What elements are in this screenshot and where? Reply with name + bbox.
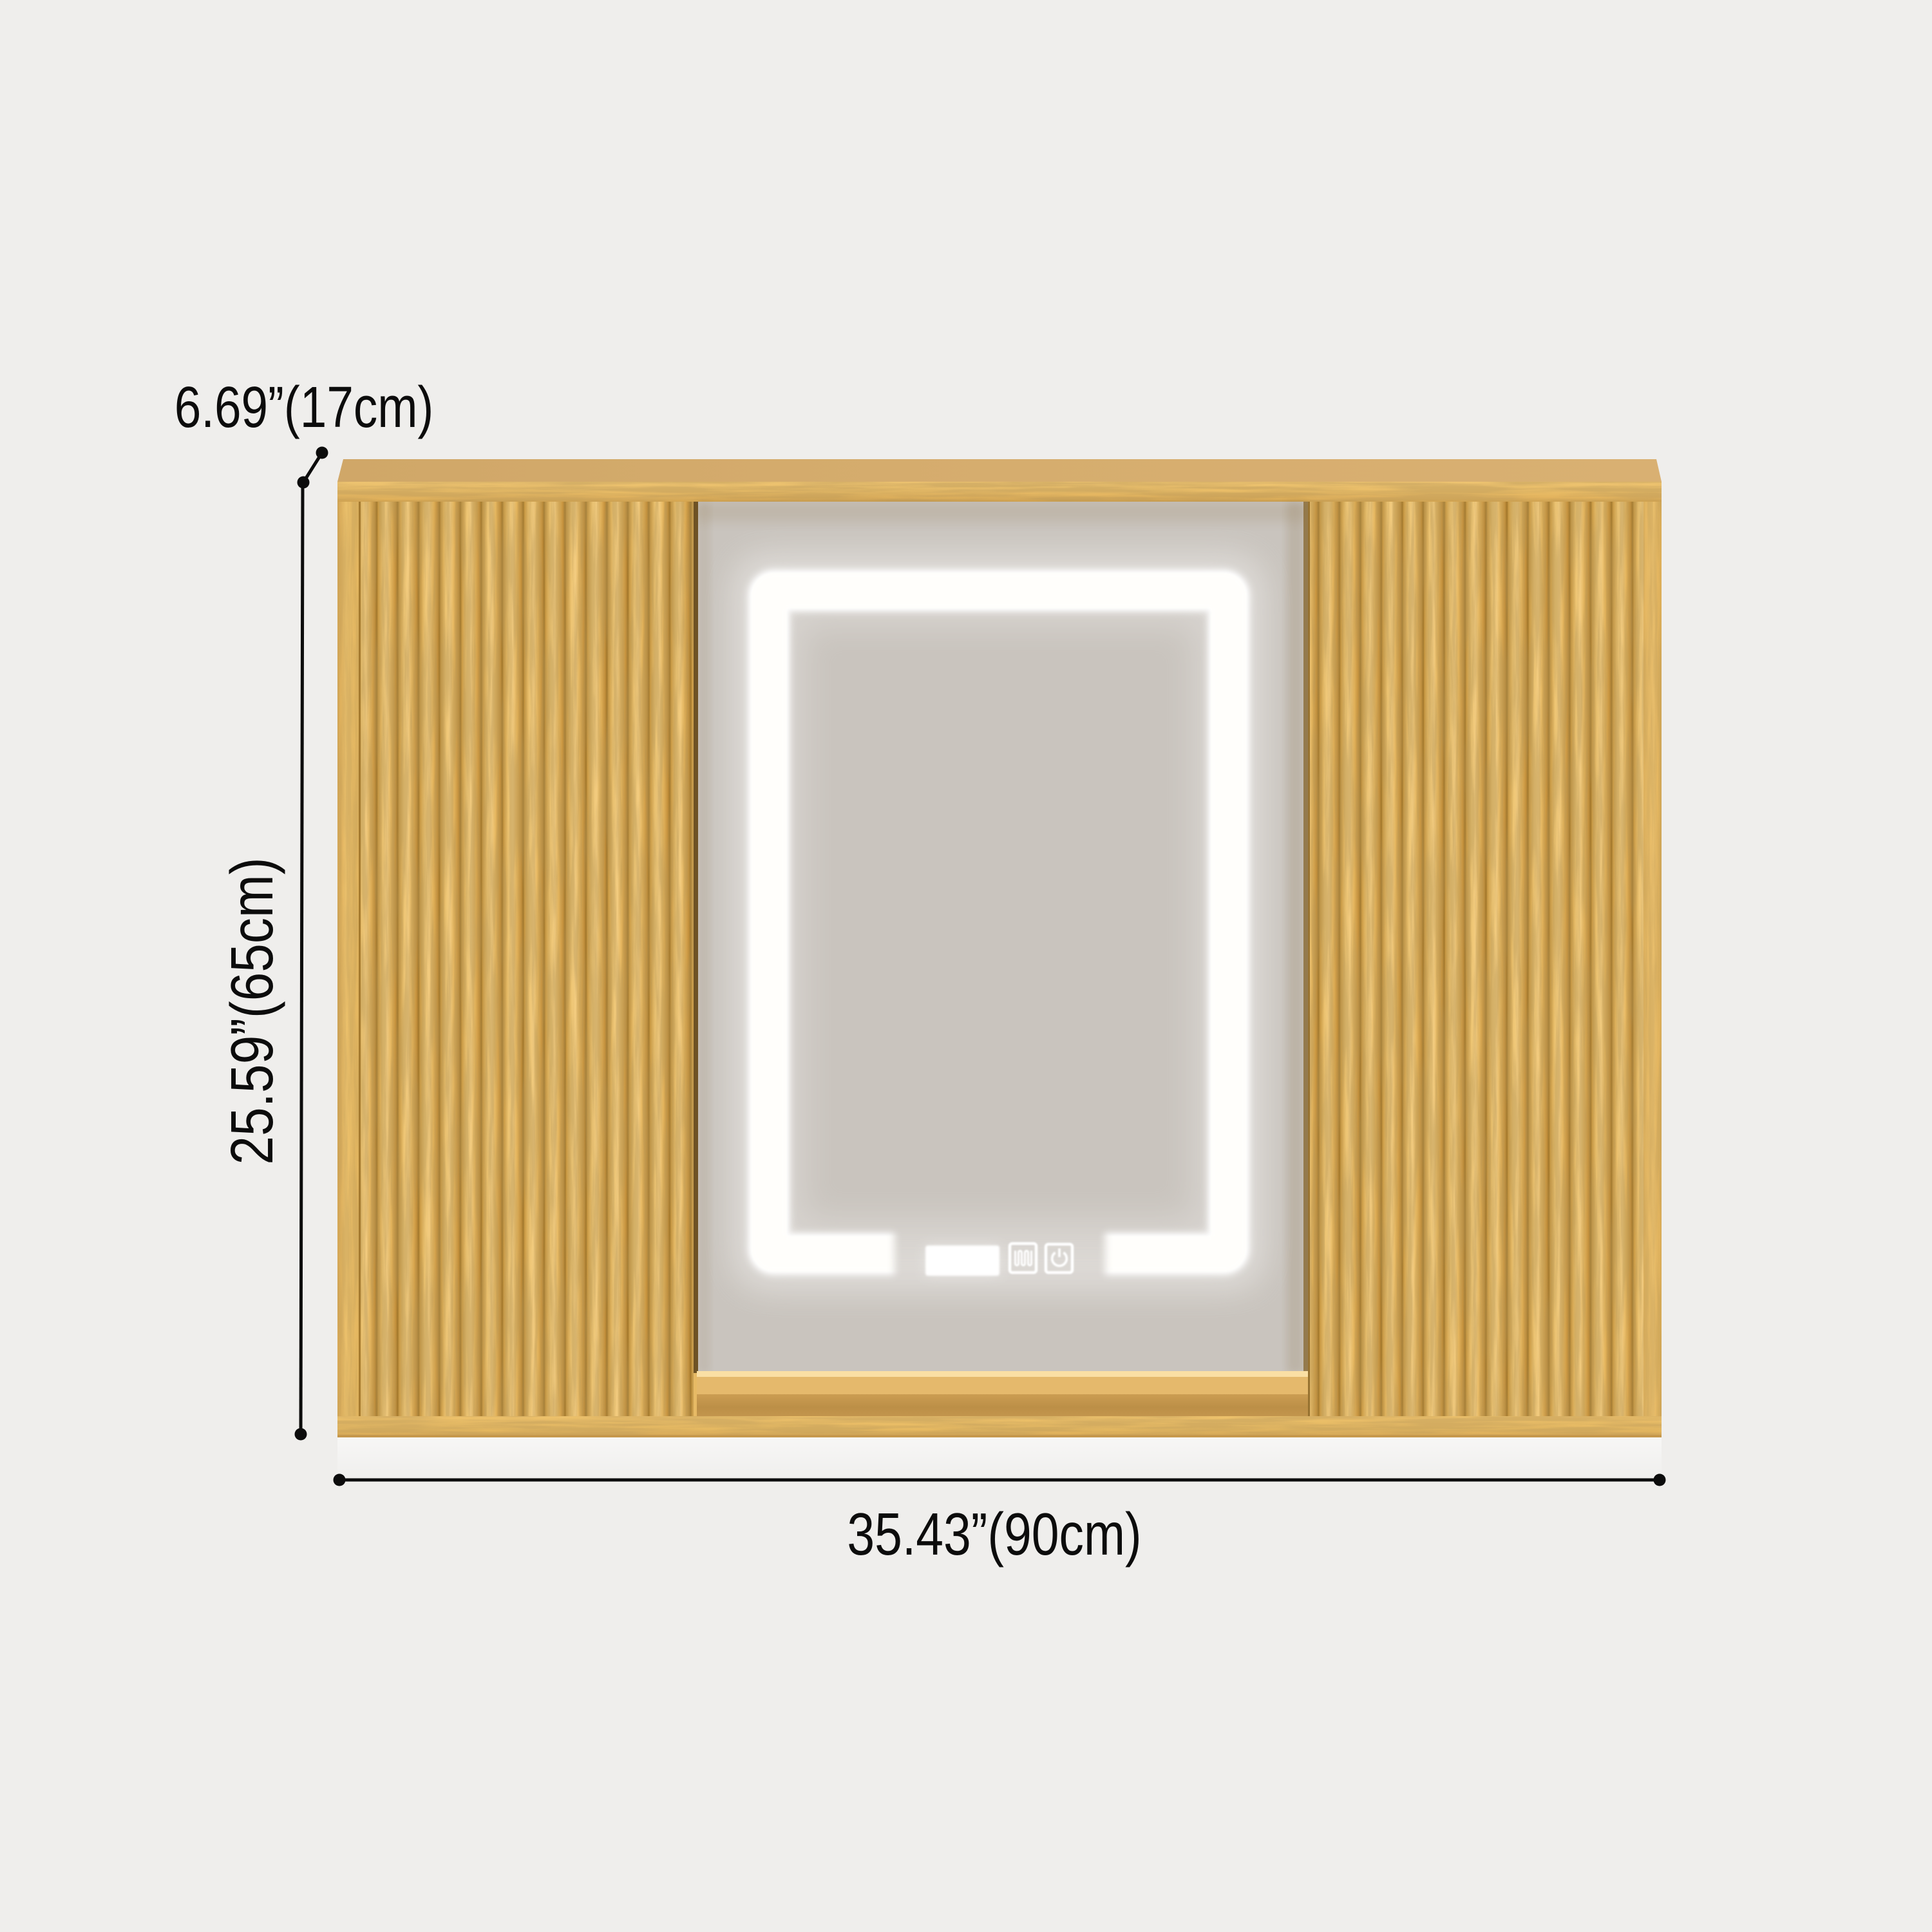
svg-text:6.69”(17cm): 6.69”(17cm) bbox=[175, 374, 434, 439]
svg-text:25.59”(65cm): 25.59”(65cm) bbox=[218, 857, 285, 1164]
svg-text:35.43”(90cm): 35.43”(90cm) bbox=[847, 1501, 1141, 1568]
